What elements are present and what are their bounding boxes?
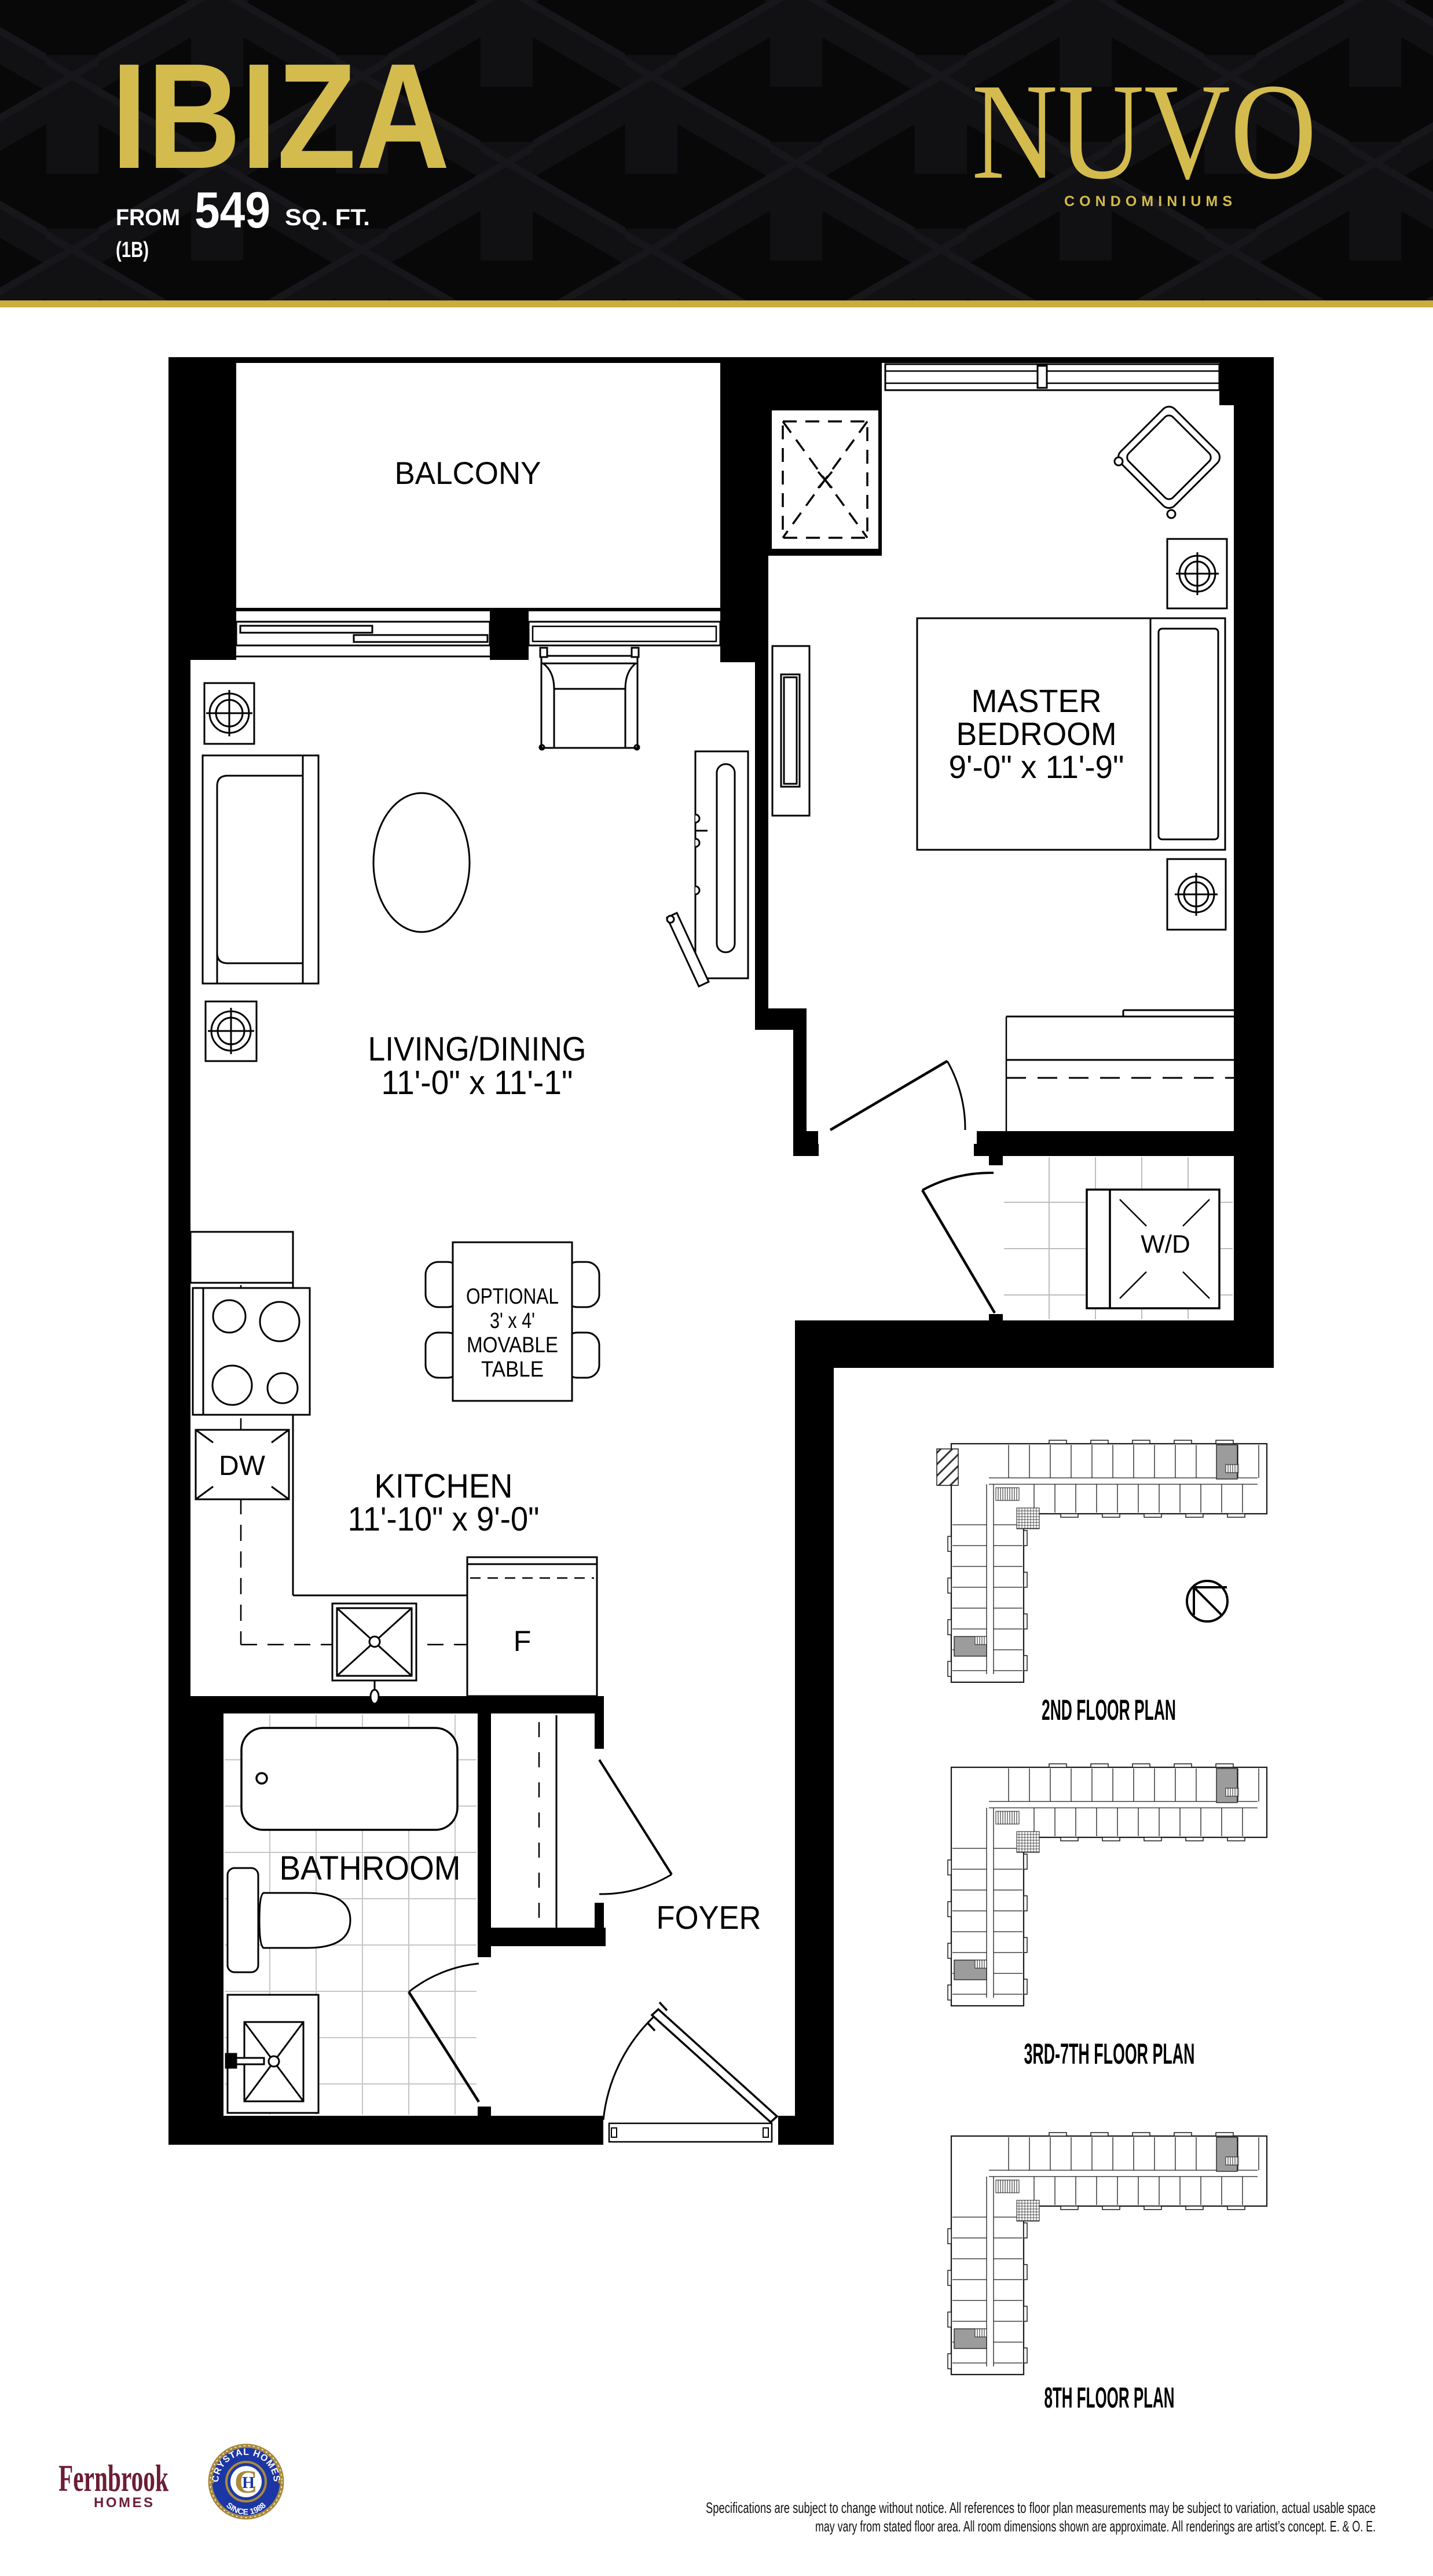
- svg-text:BATHROOM: BATHROOM: [280, 1850, 461, 1887]
- svg-text:3' x 4': 3' x 4': [490, 1309, 535, 1333]
- svg-text:BEDROOM: BEDROOM: [956, 715, 1117, 752]
- svg-text:11'-0" x 11'-1": 11'-0" x 11'-1": [382, 1064, 573, 1102]
- svg-text:LIVING/DINING: LIVING/DINING: [368, 1030, 587, 1068]
- svg-text:(1B): (1B): [116, 238, 149, 262]
- svg-text:NUVO: NUVO: [972, 56, 1317, 208]
- svg-text:9'-0" x 11'-9": 9'-0" x 11'-9": [949, 748, 1124, 785]
- svg-text:8TH FLOOR PLAN: 8TH FLOOR PLAN: [1044, 2381, 1175, 2414]
- svg-text:OPTIONAL: OPTIONAL: [466, 1285, 559, 1309]
- svg-text:549: 549: [195, 181, 270, 238]
- svg-text:BALCONY: BALCONY: [395, 455, 541, 491]
- svg-text:HOMES: HOMES: [94, 2495, 155, 2511]
- svg-text:MOVABLE: MOVABLE: [467, 1333, 558, 1357]
- svg-text:MASTER: MASTER: [972, 682, 1102, 719]
- svg-text:Fernbrook: Fernbrook: [58, 2457, 168, 2500]
- svg-text:2ND FLOOR PLAN: 2ND FLOOR PLAN: [1042, 1694, 1176, 1726]
- svg-text:3RD-7TH FLOOR PLAN: 3RD-7TH FLOOR PLAN: [1024, 2038, 1195, 2070]
- svg-text:H: H: [242, 2474, 255, 2492]
- svg-text:DW: DW: [219, 1451, 266, 1481]
- svg-text:FOYER: FOYER: [657, 1899, 761, 1936]
- svg-text:SQ. FT.: SQ. FT.: [285, 205, 370, 230]
- svg-text:KITCHEN: KITCHEN: [375, 1467, 513, 1505]
- svg-text:Specifications are subject to: Specifications are subject to change wit…: [706, 2499, 1376, 2516]
- svg-text:W/D: W/D: [1141, 1230, 1190, 1258]
- svg-text:FROM: FROM: [116, 205, 180, 230]
- svg-text:11'-10" x 9'-0": 11'-10" x 9'-0": [348, 1500, 540, 1538]
- svg-text:F: F: [514, 1625, 532, 1657]
- svg-text:TABLE: TABLE: [481, 1357, 544, 1382]
- svg-text:CONDOMINIUMS: CONDOMINIUMS: [1064, 193, 1232, 210]
- svg-text:may vary from stated floor are: may vary from stated floor area. All roo…: [815, 2518, 1376, 2535]
- svg-text:IBIZA: IBIZA: [111, 32, 450, 200]
